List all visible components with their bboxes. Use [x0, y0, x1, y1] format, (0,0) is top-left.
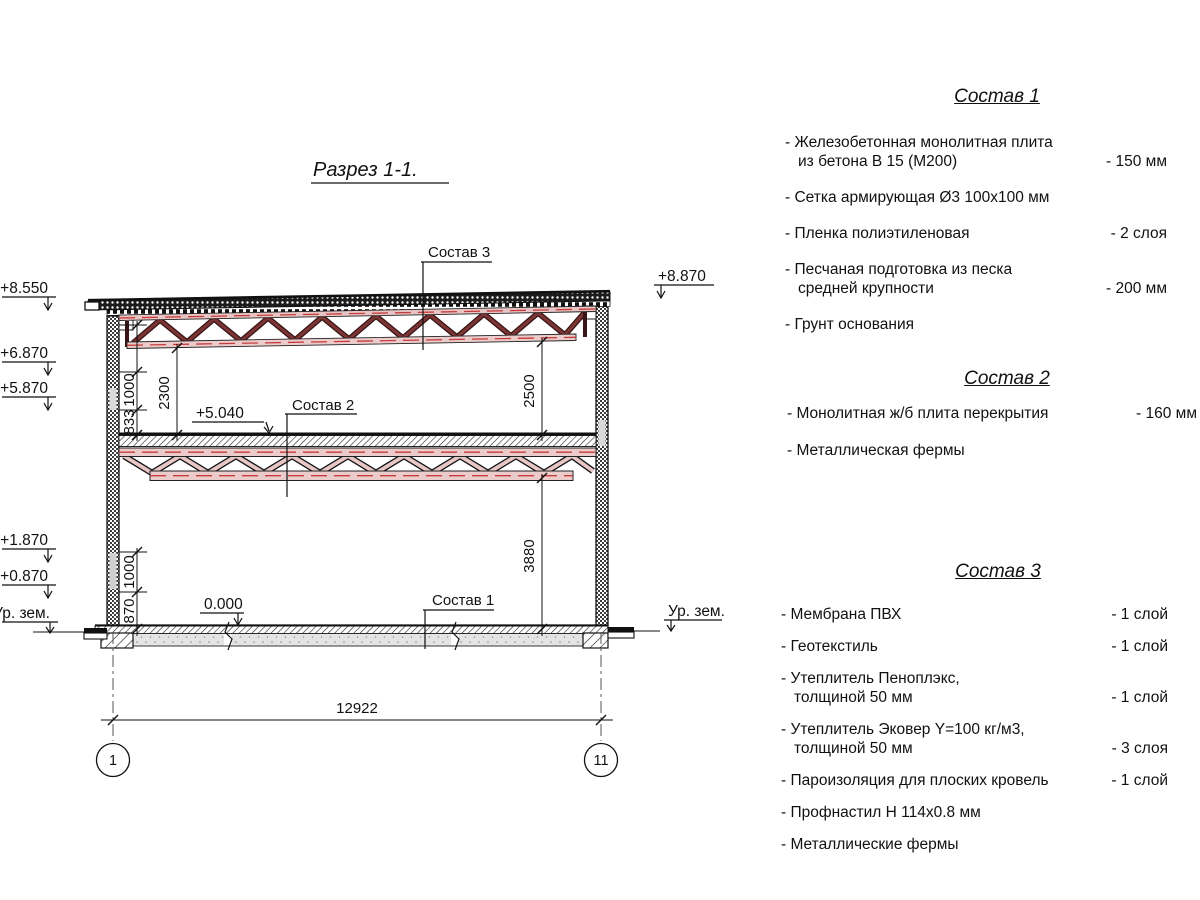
svg-text:Состав 1: Состав 1 [432, 592, 494, 609]
elevation-mark-8870: +8.870 [654, 268, 714, 298]
spec-header-3: Состав 3 [898, 561, 1098, 583]
spec-item: - Профнастил Н 114х0.8 мм [781, 803, 1168, 822]
dim-1000-upper: 1000 [121, 373, 138, 406]
axis-label-right: 11 [593, 753, 608, 769]
svg-text:Состав 2: Состав 2 [292, 397, 354, 414]
spec-header-2: Состав 2 [907, 368, 1107, 390]
spec-item-name: - Песчаная подготовка из песка средней к… [785, 260, 1012, 298]
spec-item-value: - 160 мм [1128, 404, 1197, 423]
spec-item-name: - Железобетонная монолитная плита из бет… [785, 133, 1053, 171]
roof-edge-cap [85, 302, 99, 310]
spec-list-3: - Мембрана ПВХ - 1 слой - Геотекстиль - … [781, 605, 1168, 867]
dim-2500: 2500 [521, 374, 538, 407]
dim-870: 870 [121, 598, 138, 623]
spec-list-1: - Железобетонная монолитная плита из бет… [785, 133, 1167, 351]
elevation-mark-0000: 0.000 [200, 596, 244, 625]
section-drawing: Разрез 1-1. [0, 0, 760, 900]
spec-item: - Песчаная подготовка из песка средней к… [785, 260, 1167, 298]
ground-level-mark-right: Ур. зем. [664, 603, 725, 631]
svg-text:+8.870: +8.870 [658, 268, 706, 285]
spec-item: - Пленка полиэтиленовая - 2 слоя [785, 224, 1167, 243]
spec-item-name: - Пленка полиэтиленовая [785, 224, 970, 243]
intermediate-slab [119, 434, 596, 447]
floor-slab [95, 622, 608, 650]
apron [608, 627, 634, 632]
ground-level-mark-left: Ур. зем. [0, 605, 58, 633]
section-title-text: Разрез 1-1. [313, 159, 418, 181]
svg-text:+0.870: +0.870 [0, 568, 48, 585]
apron [84, 628, 107, 633]
spec-item-name: - Металлические фермы [781, 835, 959, 854]
svg-text:Состав 3: Состав 3 [428, 244, 490, 261]
right-wall [596, 294, 608, 633]
intermediate-truss [119, 448, 596, 481]
spec-item-name: - Мембрана ПВХ [781, 605, 901, 624]
spec-item-name: - Утеплитель Эковер Y=100 кг/м3, толщино… [781, 720, 1025, 758]
panel-joint [599, 420, 606, 446]
svg-text:+8.550: +8.550 [0, 280, 48, 297]
spec-list-2: - Монолитная ж/б плита перекрытия - 160 … [787, 404, 1197, 478]
left-wall [107, 316, 119, 633]
spec-item-name: - Сетка армирующая Ø3 100х100 мм [785, 188, 1049, 207]
elevation-mark-8550: +8.550 [0, 280, 56, 310]
spec-header-1: Состав 1 [897, 86, 1097, 108]
spec-item-name: - Монолитная ж/б плита перекрытия [787, 404, 1048, 423]
spec-item-name: - Грунт основания [785, 315, 914, 334]
axis-label-left: 1 [109, 753, 117, 769]
drawing-sheet: Разрез 1-1. [0, 0, 1200, 900]
elevation-mark-5040: +5.040 [192, 405, 273, 433]
spec-item-name: - Металлическая фермы [787, 441, 965, 460]
dim-1000-lower: 1000 [121, 555, 138, 588]
elevation-mark-5870: +5.870 [0, 380, 56, 410]
svg-text:0.000: 0.000 [204, 596, 243, 613]
spec-item-name: - Утеплитель Пеноплэкс, толщиной 50 мм [781, 669, 960, 707]
drawing-title: Разрез 1-1. [311, 159, 449, 183]
dim-833: 833 [121, 409, 138, 434]
dimensions: 12922 1000 833 2300 2500 3880 1 [101, 320, 613, 725]
spec-item-name: - Профнастил Н 114х0.8 мм [781, 803, 981, 822]
spec-item: - Утеплитель Эковер Y=100 кг/м3, толщино… [781, 720, 1168, 758]
spec-item: - Пароизоляция для плоских кровель - 1 с… [781, 771, 1168, 790]
spec-item-value: - 1 слой [1103, 605, 1168, 624]
svg-text:+6.870: +6.870 [0, 345, 48, 362]
spec-item: - Мембрана ПВХ - 1 слой [781, 605, 1168, 624]
spec-item: - Геотекстиль - 1 слой [781, 637, 1168, 656]
svg-text:+1.870: +1.870 [0, 532, 48, 549]
dim-2300: 2300 [156, 376, 173, 409]
spec-item: - Металлические фермы [781, 835, 1168, 854]
dim-3880: 3880 [521, 539, 538, 572]
spec-item-name: - Геотекстиль [781, 637, 881, 656]
svg-text:Ур. зем.: Ур. зем. [668, 603, 725, 620]
callout-mid-floor: Состав 2 [285, 397, 357, 497]
spec-item: - Грунт основания [785, 315, 1167, 334]
spec-item-value: - 200 мм [1098, 279, 1167, 298]
spec-item: - Сетка армирующая Ø3 100х100 мм [785, 188, 1167, 207]
elevation-mark-6870: +6.870 [0, 345, 56, 375]
spec-item-value: - 3 слоя [1104, 739, 1168, 758]
spec-item-value: - 150 мм [1098, 152, 1167, 171]
svg-text:+5.040: +5.040 [196, 405, 244, 422]
spec-item-value: - 1 слой [1103, 771, 1168, 790]
spec-item: - Железобетонная монолитная плита из бет… [785, 133, 1167, 171]
spec-item-value: - 1 слой [1103, 688, 1168, 707]
spec-item-name: - Пароизоляция для плоских кровель [781, 771, 1049, 790]
svg-text:+5.870: +5.870 [0, 380, 48, 397]
spec-item: - Утеплитель Пеноплэкс, толщиной 50 мм -… [781, 669, 1168, 707]
panel-joint [110, 388, 117, 410]
spec-item: - Металлическая фермы [787, 441, 1197, 460]
spec-item-value: - 2 слоя [1103, 224, 1167, 243]
elevation-mark-1870: +1.870 [0, 532, 56, 562]
dim-span: 12922 [336, 700, 378, 717]
spec-item: - Монолитная ж/б плита перекрытия - 160 … [787, 404, 1197, 423]
svg-text:Ур. зем.: Ур. зем. [0, 605, 50, 622]
spec-item-value: - 1 слой [1103, 637, 1168, 656]
panel-joint [110, 553, 117, 589]
elevation-mark-0870: +0.870 [0, 568, 56, 598]
